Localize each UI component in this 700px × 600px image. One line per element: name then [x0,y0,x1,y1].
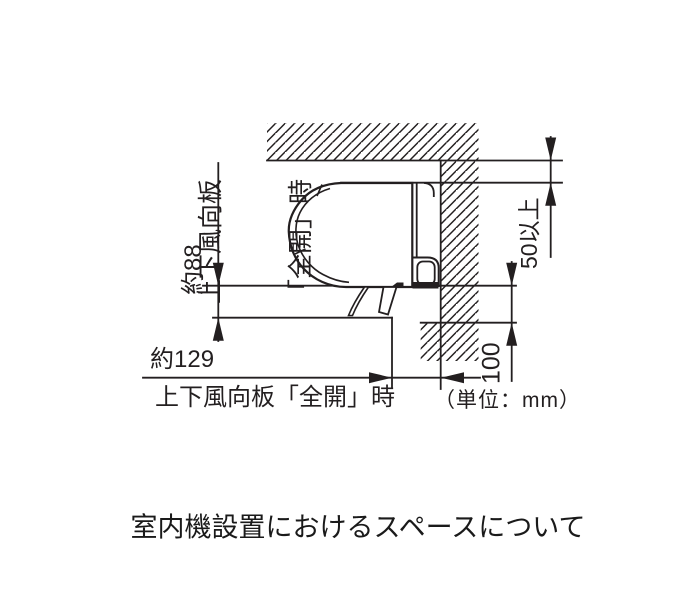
arrow-up-icon [506,323,517,346]
louver-open-vertical-line2: 「全開」時 [286,154,316,304]
dimension-50-label: 50以上 [516,179,542,269]
unit-note: （単位：mm） [434,389,581,413]
installation-space-diagram: 上下風向板 「全開」時 約88 50以上 100 約129 上下風向板「全開」時… [0,0,700,600]
arrow-right-icon [369,372,392,383]
louver-open-vertical-label: 上下風向板 「全開」時 [136,154,376,304]
arrow-down-icon [545,138,556,161]
dimension-88-label: 約88 [180,215,208,295]
diagram-caption: 室内機設置におけるスペースについて [131,512,586,543]
dimension-129-label: 約129 [150,346,214,374]
arrow-up-icon [545,183,556,206]
louver-blade-rear [379,287,397,315]
mount-bracket-curve [424,183,434,197]
arrow-up-icon [213,318,224,341]
arrow-left-icon [441,372,464,383]
unit-bottom-shadow [413,282,439,289]
dimension-100-label: 100 [478,324,507,384]
drain-pipe-inner [417,262,434,285]
louver-open-horizontal-label: 上下風向板「全開」時 [155,384,395,412]
